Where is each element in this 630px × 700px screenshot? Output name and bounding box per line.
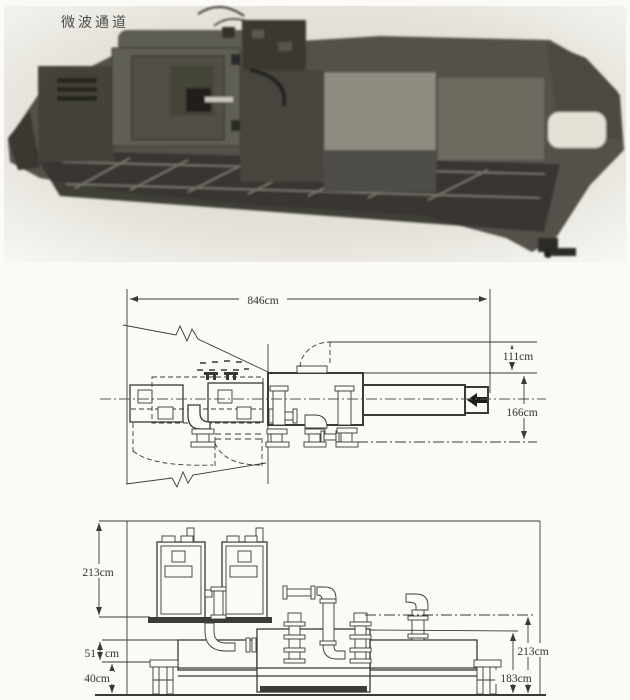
plan-dimension-offset: 111cm: [496, 345, 540, 370]
plan-width-label: 166cm: [506, 407, 537, 419]
elev-gap-unit-label: cm: [105, 648, 119, 660]
plan-table-symbols: [204, 372, 238, 380]
elev-platform: [148, 617, 272, 623]
plan-length-label: 846cm: [247, 295, 278, 307]
elev-left-stand: [150, 660, 178, 694]
elev-cabinet-1: [157, 528, 205, 618]
plan-top-hatch: [297, 366, 327, 373]
photo-mid-top-box: [242, 20, 306, 72]
plan-dimension-width: 166cm: [500, 376, 546, 439]
photo-white-drum: [548, 112, 606, 148]
elev-dimension-cabinet-height: 213cm: [79, 523, 119, 615]
plan-break-line-top: [123, 325, 268, 372]
photo-door-latch: [205, 97, 233, 102]
vent-slats: [57, 78, 97, 101]
elev-dimension-gap: 51 cm: [85, 642, 120, 660]
plan-outlet-tube: [363, 385, 465, 415]
elev-cabinet-2: [222, 528, 267, 618]
plan-dashed-pipe-run: [215, 434, 263, 439]
elevation-view-drawing: 213cm 51 cm 40cm: [0, 495, 630, 700]
elev-body-height-label: 183cm: [500, 673, 531, 685]
scanned-document-page: 微波通道 846cm: [0, 0, 630, 700]
machine-photo: [0, 0, 630, 280]
plan-offset-label: 111cm: [503, 351, 534, 363]
elev-ref-line-body-top: [370, 630, 518, 631]
elev-pipe-c: [406, 594, 428, 640]
photo-caption-microwave-channel: 微波通道: [61, 12, 129, 32]
plan-dimension-length: 846cm: [130, 292, 487, 307]
elev-gap-value-label: 51: [85, 648, 97, 660]
elev-base-height-label: 40cm: [84, 673, 110, 685]
photo-far-right-panel: [438, 78, 544, 160]
elev-pipe-top-height-label: 213cm: [517, 646, 548, 658]
elev-cabinet-height-label: 213cm: [82, 567, 113, 579]
photo-mid-section: [240, 70, 326, 182]
elev-dimension-base: 40cm: [78, 664, 114, 693]
plan-view-drawing: 846cm: [0, 283, 630, 493]
plan-break-line-bottom: [126, 463, 266, 487]
plan-door-swing-top: [300, 342, 330, 367]
plan-dotted-cluster: [197, 361, 249, 370]
